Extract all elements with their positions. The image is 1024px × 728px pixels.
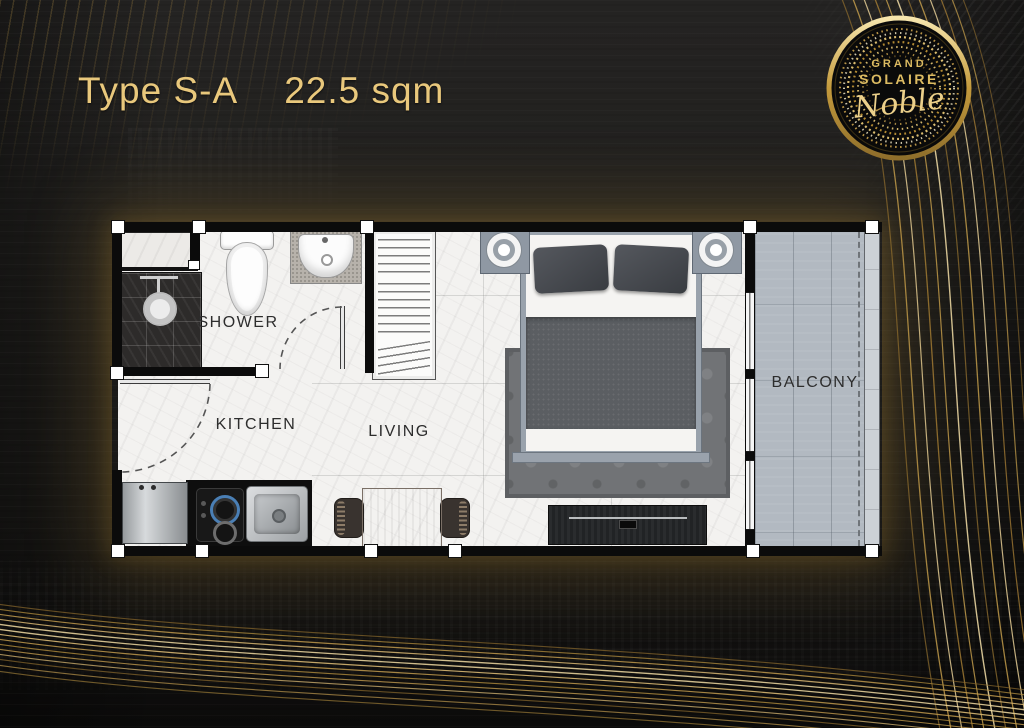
column bbox=[255, 364, 269, 378]
stove-knob bbox=[201, 513, 206, 518]
stove bbox=[196, 488, 244, 542]
shower-head bbox=[143, 292, 177, 326]
column bbox=[364, 544, 378, 558]
bed bbox=[520, 230, 702, 456]
column bbox=[743, 220, 757, 234]
column bbox=[865, 220, 879, 234]
stove-burner-small bbox=[213, 521, 237, 545]
kitchen-sink bbox=[246, 486, 308, 542]
dining-chair bbox=[334, 498, 364, 538]
brand-logo: GRAND SOLAIRE Noble bbox=[826, 15, 972, 161]
bedside-lamp bbox=[698, 232, 734, 268]
wall bbox=[112, 367, 265, 376]
gold-hatch-top-left bbox=[0, 0, 680, 240]
hanger-rail bbox=[378, 283, 430, 339]
sliding-glass-panel bbox=[746, 292, 754, 370]
bathroom-ledge bbox=[118, 232, 198, 271]
column bbox=[865, 544, 879, 558]
fridge-handle bbox=[139, 485, 144, 490]
logo-text: GRAND SOLAIRE Noble bbox=[826, 15, 972, 161]
chair-slats bbox=[337, 501, 345, 535]
room-label-living: LIVING bbox=[368, 423, 429, 441]
refrigerator bbox=[122, 482, 188, 544]
tv-base bbox=[619, 520, 637, 529]
sliding-glass-panel bbox=[746, 378, 754, 452]
room-label-kitchen: KITCHEN bbox=[216, 416, 297, 434]
faint-city-skyline bbox=[0, 552, 1024, 702]
unit-area-label: 22.5 sqm bbox=[284, 70, 444, 112]
room-label-balcony: BALCONY bbox=[772, 374, 859, 392]
stove-knob bbox=[201, 501, 206, 506]
column bbox=[110, 366, 124, 380]
wardrobe bbox=[372, 230, 436, 380]
tv-console bbox=[548, 505, 707, 545]
bedside-lamp bbox=[486, 232, 522, 268]
pillow bbox=[533, 244, 609, 294]
faucet bbox=[322, 237, 328, 243]
column bbox=[188, 260, 200, 270]
pillow bbox=[613, 244, 689, 294]
column bbox=[195, 544, 209, 558]
page-title: Type S-A 22.5 sqm bbox=[78, 70, 444, 112]
wall-top bbox=[112, 222, 882, 232]
bathroom-door-leaf bbox=[340, 306, 345, 369]
footboard bbox=[512, 452, 710, 463]
dining-chair bbox=[440, 498, 470, 538]
hanger-rail bbox=[378, 341, 430, 375]
column bbox=[448, 544, 462, 558]
sliding-glass-panel bbox=[746, 460, 754, 530]
column bbox=[111, 220, 125, 234]
balcony-railing bbox=[864, 228, 880, 550]
sink-drain bbox=[272, 509, 286, 523]
column bbox=[111, 544, 125, 558]
logo-script-noble: Noble bbox=[852, 84, 946, 123]
logo-line-grand: GRAND bbox=[871, 58, 926, 70]
wall-bottom bbox=[112, 546, 882, 556]
duvet bbox=[526, 317, 696, 429]
dining-table bbox=[362, 488, 442, 548]
floor-plan: SHOWER KITCHEN LIVING BALCONY bbox=[112, 222, 882, 556]
entry-door-leaf bbox=[120, 379, 210, 384]
column bbox=[192, 220, 206, 234]
room-label-shower: SHOWER bbox=[198, 314, 279, 332]
fridge-handle bbox=[151, 485, 156, 490]
hanger-rail bbox=[378, 239, 430, 275]
column bbox=[746, 544, 760, 558]
tile-joint bbox=[483, 232, 484, 546]
wall bbox=[365, 222, 374, 373]
tv-screen bbox=[569, 517, 687, 519]
column bbox=[360, 220, 374, 234]
page-background: Type S-A 22.5 sqm GRAND SOLAIRE Noble bbox=[0, 0, 1024, 728]
unit-type-label: Type S-A bbox=[78, 70, 238, 112]
basin-drain bbox=[321, 254, 333, 266]
chair-slats bbox=[459, 501, 467, 535]
wall-left bbox=[112, 222, 122, 378]
gold-curves-bottom bbox=[0, 548, 1024, 728]
